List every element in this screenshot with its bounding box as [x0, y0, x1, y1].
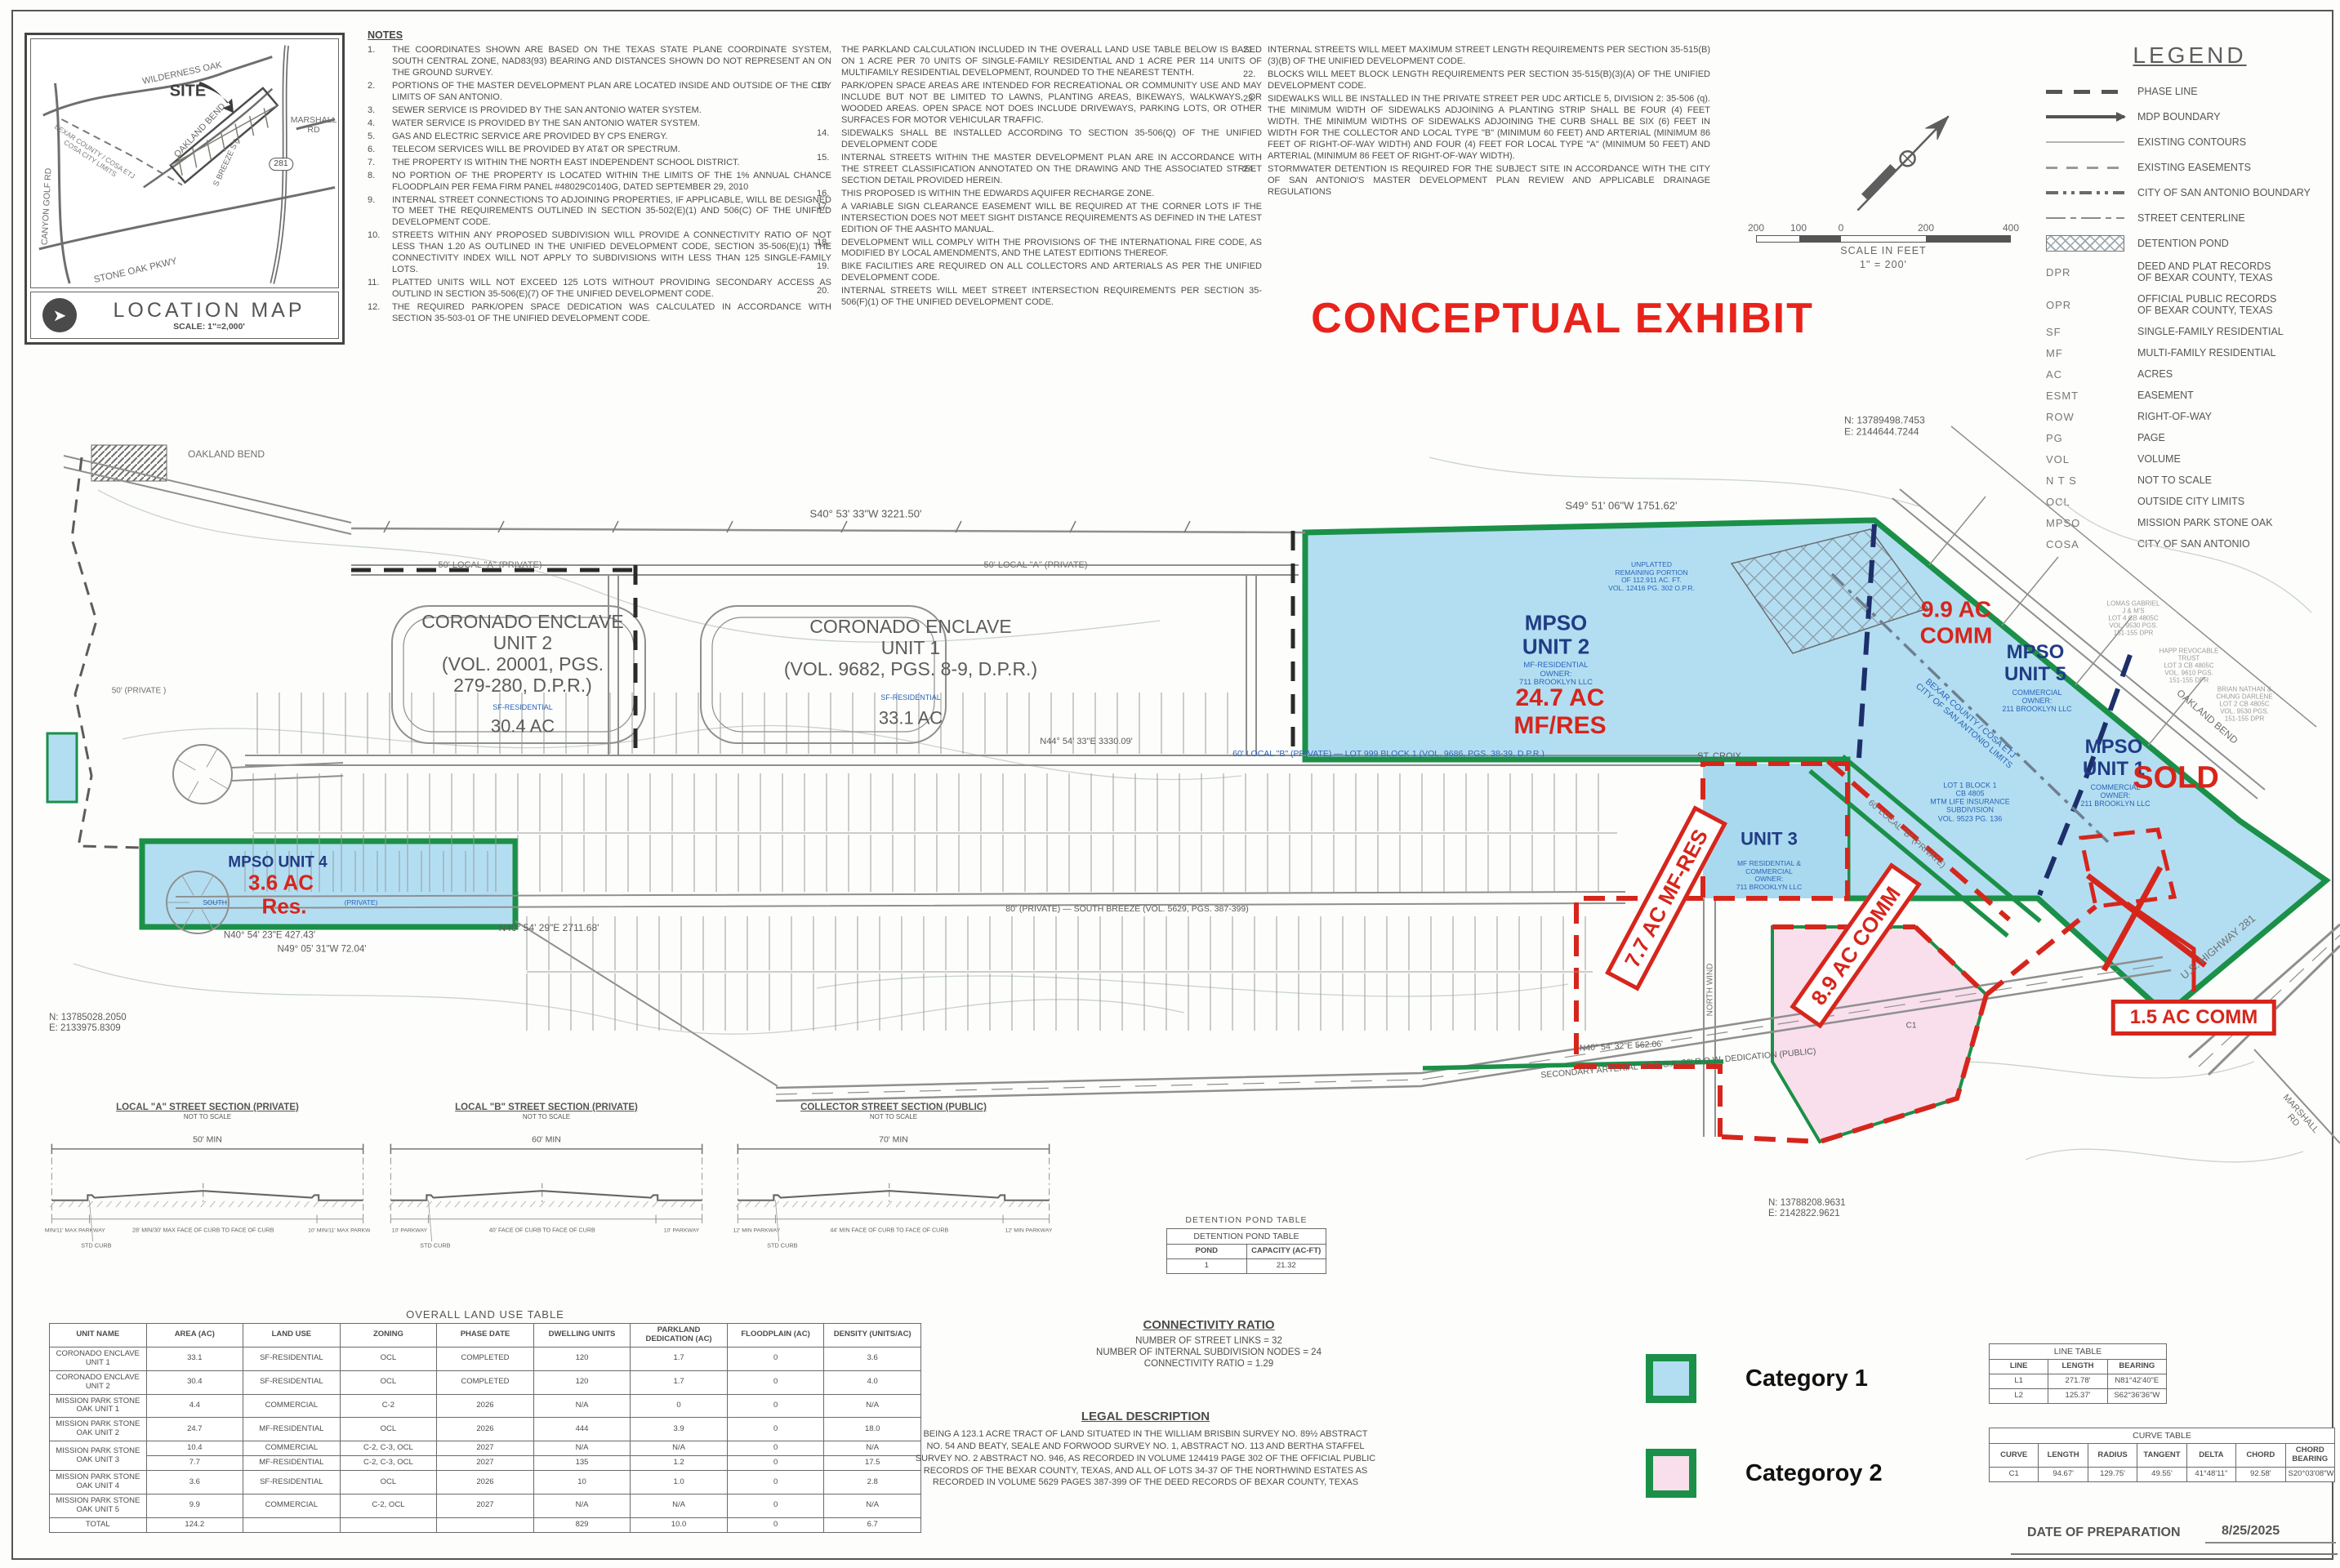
column-header: POND [1167, 1245, 1247, 1259]
table-cell: L1 [1990, 1374, 2048, 1388]
table-cell: SF-RESIDENTIAL [243, 1370, 341, 1394]
table-cell: C-2, C-3, OCL [340, 1456, 437, 1471]
table-cell: 3.9 [631, 1418, 728, 1441]
table-cell: 1 [1167, 1258, 1247, 1273]
note-text: THE REQUIRED PARK/OPEN SPACE DEDICATION … [392, 302, 831, 323]
table-cell: 6.7 [824, 1517, 921, 1532]
north-arrow-icon: ➤ [42, 298, 77, 332]
note-text: THE COORDINATES SHOWN ARE BASED ON THE T… [392, 45, 831, 78]
legal-title: LEGAL DESCRIPTION [915, 1410, 1376, 1423]
abbr-key: OPR [2046, 299, 2124, 311]
abbr-key: DPR [2046, 266, 2124, 278]
svg-text:STD CURB: STD CURB [420, 1241, 451, 1249]
note-text: PLATTED UNITS WILL NOT EXCEED 125 LOTS W… [392, 278, 831, 299]
svg-text:STD CURB: STD CURB [767, 1241, 798, 1249]
table-cell: 7.7 [146, 1456, 243, 1471]
note-item: 1.THE COORDINATES SHOWN ARE BASED ON THE… [368, 45, 831, 79]
table-cell: 1.2 [631, 1456, 728, 1471]
table-cell: 135 [533, 1456, 631, 1471]
notes-column-1: NOTES 1.THE COORDINATES SHOWN ARE BASED … [368, 29, 831, 327]
note-item: 22.BLOCKS WILL MEET BLOCK LENGTH REQUIRE… [1243, 69, 1710, 92]
location-map-labels: WILDERNESS OAKSITEOAKLAND BENDS BREEZE S… [31, 39, 338, 287]
category-legend: Category 1Categoroy 2 [1646, 1354, 1940, 1543]
note-number: 13. [817, 81, 829, 92]
street-section-collector: COLLECTOR STREET SECTION (PUBLIC)NOT TO … [731, 1102, 1056, 1298]
table-cell: 2027 [437, 1494, 534, 1517]
note-item: 9.INTERNAL STREET CONNECTIONS TO ADJOINI… [368, 195, 831, 229]
column-header: CHORD BEARING [2285, 1444, 2334, 1468]
table-cell: 2026 [437, 1394, 534, 1418]
column-header: LENGTH [2039, 1444, 2088, 1468]
location-map: WILDERNESS OAKSITEOAKLAND BENDS BREEZE S… [25, 33, 345, 345]
abbr-key: SF [2046, 326, 2124, 338]
table-cell: 21.32 [1246, 1258, 1326, 1273]
table-cell: MISSION PARK STONE OAK UNIT 1 [50, 1394, 147, 1418]
connectivity-block: CONNECTIVITY RATIO NUMBER OF STREET LINK… [1013, 1318, 1405, 1369]
legend-item-easmt: EXISTING EASEMENTS [2046, 159, 2333, 176]
legend-item-cosa: CITY OF SAN ANTONIO BOUNDARY [2046, 185, 2333, 201]
table-cell [340, 1517, 437, 1532]
table-title: DETENTION POND TABLE [1167, 1229, 1326, 1245]
note-item: 14.SIDEWALKS SHALL BE INSTALLED ACCORDIN… [817, 128, 1262, 151]
date-label: DATE OF PREPARATION [2027, 1526, 2181, 1539]
table-cell: 10 [533, 1471, 631, 1494]
curve-table: CURVE TABLECURVELENGTHRADIUSTANGENTDELTA… [1989, 1428, 2335, 1482]
table-cell: S62°36'36"W [2107, 1388, 2166, 1403]
note-item: 16.THIS PROPOSED IS WITHIN THE EDWARDS A… [817, 189, 1262, 200]
note-text: SIDEWALKS WILL BE INSTALLED IN THE PRIVA… [1268, 94, 1710, 161]
legend-item-center: STREET CENTERLINE [2046, 210, 2333, 226]
scale-tick: 400 [2003, 222, 2019, 234]
category-label: Categoroy 2 [1745, 1460, 1883, 1487]
table-cell: COMMERCIAL [243, 1394, 341, 1418]
table-cell: 0 [727, 1471, 824, 1494]
table-cell: 2027 [437, 1456, 534, 1471]
column-header: LINE [1990, 1360, 2048, 1374]
legal-text: BEING A 123.1 ACRE TRACT OF LAND SITUATE… [915, 1428, 1376, 1489]
notes-column-3: 21.INTERNAL STREETS WILL MEET MAXIMUM ST… [1243, 29, 1710, 200]
table-cell: 120 [533, 1370, 631, 1394]
table-cell: 444 [533, 1418, 631, 1441]
section-title: COLLECTOR STREET SECTION (PUBLIC) [731, 1102, 1056, 1112]
table-cell: 0 [631, 1394, 728, 1418]
legend-item-label: MDP BOUNDARY [2137, 111, 2221, 122]
table-cell: 124.2 [146, 1517, 243, 1532]
legend-item-mdp: MDP BOUNDARY [2046, 109, 2333, 125]
easmt-symbol-icon [2046, 159, 2124, 176]
legend-item-label: EXISTING CONTOURS [2137, 136, 2246, 148]
note-number: 22. [1243, 69, 1255, 81]
road-canyon-golf: CANYON GOLF RD [41, 167, 55, 245]
connectivity-line: CONNECTIVITY RATIO = 1.29 [1013, 1359, 1405, 1369]
street-section-local-b: LOCAL "B" STREET SECTION (PRIVATE)NOT TO… [384, 1102, 709, 1298]
note-item: 21.INTERNAL STREETS WILL MEET MAXIMUM ST… [1243, 45, 1710, 68]
table-cell: 1.7 [631, 1370, 728, 1394]
table-cell: 0 [727, 1441, 824, 1456]
note-number: 20. [817, 286, 829, 297]
table-cell: 2.8 [824, 1471, 921, 1494]
note-text: BIKE FACILITIES ARE REQUIRED ON ALL COLL… [841, 261, 1262, 283]
category-label: Category 1 [1745, 1365, 1868, 1392]
note-item: 20.INTERNAL STREETS WILL MEET STREET INT… [817, 286, 1262, 309]
note-number: 6. [368, 145, 375, 156]
note-number: 14. [817, 128, 829, 140]
note-number: 16. [817, 189, 829, 200]
exhibit-title: CONCEPTUAL EXHIBIT [1311, 294, 1814, 343]
table-cell: 0 [727, 1394, 824, 1418]
table-cell: 120 [533, 1347, 631, 1370]
table-cell: MISSION PARK STONE OAK UNIT 4 [50, 1471, 147, 1494]
note-number: 23. [1243, 94, 1255, 105]
legend-abbr-dpr: DPRDEED AND PLAT RECORDS OF BEXAR COUNTY… [2046, 261, 2333, 284]
scale-tick: 200 [1748, 222, 1764, 234]
section-drawing: 50' MIN10' MIN/11' MAX PARKWAY28' MIN/30… [45, 1120, 370, 1272]
table-cell [437, 1517, 534, 1532]
section-drawing: 70' MIN12' MIN PARKWAY44' MIN FACE OF CU… [731, 1120, 1056, 1272]
table-cell: COMPLETED [437, 1370, 534, 1394]
site-label: SITE [170, 82, 206, 101]
svg-text:28' MIN/30' MAX FACE OF CURB T: 28' MIN/30' MAX FACE OF CURB TO FACE OF … [132, 1227, 274, 1233]
table-cell: OCL [340, 1347, 437, 1370]
note-number: 11. [368, 278, 379, 289]
mdp-symbol-icon [2046, 109, 2124, 125]
column-header: DENSITY (UNITS/AC) [824, 1324, 921, 1347]
note-item: 8.NO PORTION OF THE PROPERTY IS LOCATED … [368, 171, 831, 194]
legend-line-items: PHASE LINEMDP BOUNDARYEXISTING CONTOURSE… [2046, 83, 2333, 252]
note-text: SIDEWALKS SHALL BE INSTALLED ACCORDING T… [841, 128, 1262, 149]
boundary-label: BEXAR COUNTY / COSA ETJ COSA CITY LIMITS [49, 123, 136, 188]
plan-sheet: WILDERNESS OAKSITEOAKLAND BENDS BREEZE S… [0, 0, 2340, 1568]
note-text: BLOCKS WILL MEET BLOCK LENGTH REQUIREMEN… [1268, 69, 1710, 91]
legend-item-label: STREET CENTERLINE [2137, 212, 2245, 224]
connectivity-line: NUMBER OF INTERNAL SUBDIVISION NODES = 2… [1013, 1347, 1405, 1357]
table-cell: CORONADO ENCLAVE UNIT 1 [50, 1347, 147, 1370]
note-item: 12.THE REQUIRED PARK/OPEN SPACE DEDICATI… [368, 302, 831, 325]
svg-text:60' MIN: 60' MIN [532, 1136, 561, 1145]
note-text: THE PARKLAND CALCULATION INCLUDED IN THE… [841, 45, 1262, 78]
street-section-local-a: LOCAL "A" STREET SECTION (PRIVATE)NOT TO… [45, 1102, 370, 1298]
table-cell: C-2 [340, 1394, 437, 1418]
note-text: INTERNAL STREETS WILL MEET MAXIMUM STREE… [1268, 45, 1710, 66]
svg-text:12' MIN PARKWAY: 12' MIN PARKWAY [733, 1227, 781, 1233]
section-title: LOCAL "A" STREET SECTION (PRIVATE) [45, 1102, 370, 1112]
column-header: LENGTH [2048, 1360, 2107, 1374]
note-text: INTERNAL STREETS WILL MEET STREET INTERS… [841, 286, 1262, 307]
detention-table-title: DETENTION POND TABLE [1166, 1215, 1326, 1225]
abbr-label: OFFICIAL PUBLIC RECORDS OF BEXAR COUNTY,… [2137, 293, 2276, 317]
section-nts: NOT TO SCALE [384, 1113, 709, 1120]
scale-bar-label: SCALE IN FEET [1756, 245, 2011, 256]
svg-text:12' MIN PARKWAY: 12' MIN PARKWAY [1005, 1227, 1053, 1233]
table-cell: N/A [631, 1494, 728, 1517]
table-cell: SF-RESIDENTIAL [243, 1471, 341, 1494]
north-arrow-icon [1821, 98, 1985, 229]
note-item: 17.A VARIABLE SIGN CLEARANCE EASEMENT WI… [817, 202, 1262, 236]
table-cell: N81°42'40"E [2107, 1374, 2166, 1388]
table-cell: 0 [727, 1517, 824, 1532]
location-map-canvas: WILDERNESS OAKSITEOAKLAND BENDS BREEZE S… [30, 38, 339, 288]
note-text: DEVELOPMENT WILL COMPLY WITH THE PROVISI… [841, 238, 1262, 259]
scale-tick: 200 [1918, 222, 1934, 234]
note-item: 13.PARK/OPEN SPACE AREAS ARE INTENDED FO… [817, 81, 1262, 127]
note-text: SEWER SERVICE IS PROVIDED BY THE SAN ANT… [392, 105, 702, 115]
table-cell: N/A [533, 1441, 631, 1456]
note-text: WATER SERVICE IS PROVIDED BY THE SAN ANT… [392, 118, 700, 128]
table-cell: 30.4 [146, 1370, 243, 1394]
phase-symbol-icon [2046, 83, 2124, 100]
road-marshall: MARSHALL RD [291, 116, 337, 136]
road-s-breeze: S BREEZE ST [212, 139, 242, 189]
scale-segment [1757, 236, 1799, 242]
table-cell: OCL [340, 1471, 437, 1494]
note-item: 19.BIKE FACILITIES ARE REQUIRED ON ALL C… [817, 261, 1262, 284]
note-text: GAS AND ELECTRIC SERVICE ARE PROVIDED BY… [392, 131, 667, 141]
table-cell: MISSION PARK STONE OAK UNIT 2 [50, 1418, 147, 1441]
connectivity-title: CONNECTIVITY RATIO [1013, 1318, 1405, 1332]
table-title: LINE TABLE [1990, 1344, 2167, 1360]
table-cell: N/A [824, 1441, 921, 1456]
svg-text:10' MIN/11' MAX PARKWAY: 10' MIN/11' MAX PARKWAY [308, 1227, 370, 1233]
table-cell: N/A [533, 1494, 631, 1517]
connectivity-line: NUMBER OF STREET LINKS = 32 [1013, 1336, 1405, 1346]
table-cell: C-2, C-3, OCL [340, 1441, 437, 1456]
table-cell: N/A [824, 1494, 921, 1517]
note-text: STORMWATER DETENTION IS REQUIRED FOR THE… [1268, 164, 1710, 197]
footer-rule [2011, 1553, 2338, 1555]
note-number: 15. [817, 153, 829, 164]
table-cell: COMMERCIAL [243, 1441, 341, 1456]
pond-symbol-icon [2046, 235, 2124, 252]
column-header: RADIUS [2088, 1444, 2137, 1468]
legal-description-block: LEGAL DESCRIPTION BEING A 123.1 ACRE TRA… [915, 1410, 1376, 1489]
category-item: Categoroy 2 [1646, 1449, 1940, 1498]
notes-heading: NOTES [368, 29, 831, 42]
scale-bar-bar [1756, 235, 2011, 243]
west-boundary [72, 457, 142, 848]
legend-title: LEGEND [2046, 42, 2333, 69]
scale-bar: 2001000200400 SCALE IN FEET 1" = 200' [1756, 222, 2011, 270]
column-header: PARKLAND DEDICATION (AC) [631, 1324, 728, 1347]
table-cell: 41°48'11" [2186, 1467, 2235, 1481]
table-cell: 0 [727, 1456, 824, 1471]
scale-segment [1926, 236, 2010, 242]
note-number: 5. [368, 131, 375, 143]
note-text: TELECOM SERVICES WILL BE PROVIDED BY AT&… [392, 145, 680, 154]
location-map-scale: SCALE: 1"=2,000' [88, 322, 330, 332]
road-stone-oak: STONE OAK PKWY [93, 256, 178, 286]
legend-item-label: CITY OF SAN ANTONIO BOUNDARY [2137, 187, 2311, 198]
table-title: CURVE TABLE [1990, 1428, 2335, 1444]
table-cell: 17.5 [824, 1456, 921, 1471]
table-cell: C1 [1990, 1467, 2039, 1481]
note-number: 2. [368, 81, 375, 92]
scale-tick: 0 [1839, 222, 1844, 234]
column-header: AREA (AC) [146, 1324, 243, 1347]
note-number: 19. [817, 261, 829, 273]
table-cell: N/A [824, 1394, 921, 1418]
column-header: BEARING [2107, 1360, 2166, 1374]
scale-bar-ratio: 1" = 200' [1756, 259, 2011, 270]
table-cell: 129.75' [2088, 1467, 2137, 1481]
table-cell: 0 [727, 1494, 824, 1517]
table-cell: 4.0 [824, 1370, 921, 1394]
column-header: CURVE [1990, 1444, 2039, 1468]
table-cell [243, 1517, 341, 1532]
parcel-edge-fill [47, 733, 77, 802]
abbr-label: DEED AND PLAT RECORDS OF BEXAR COUNTY, T… [2137, 261, 2273, 284]
note-item: 5.GAS AND ELECTRIC SERVICE ARE PROVIDED … [368, 131, 831, 143]
column-header: CHORD [2236, 1444, 2285, 1468]
table-cell: 829 [533, 1517, 631, 1532]
table-cell: 94.67' [2039, 1467, 2088, 1481]
cosa-symbol-icon [2046, 185, 2124, 201]
section-nts: NOT TO SCALE [45, 1113, 370, 1120]
note-number: 17. [817, 202, 829, 213]
line-table: LINE TABLELINELENGTHBEARINGL1271.78'N81°… [1989, 1343, 2167, 1404]
legend-abbr-sf: SFSINGLE-FAMILY RESIDENTIAL [2046, 326, 2333, 338]
svg-text:10' PARKWAY: 10' PARKWAY [392, 1227, 428, 1233]
note-number: 9. [368, 195, 375, 207]
table-cell: COMMERCIAL [243, 1494, 341, 1517]
legend-item-pond: DETENTION POND [2046, 235, 2333, 252]
category-item: Category 1 [1646, 1354, 1940, 1403]
section-nts: NOT TO SCALE [731, 1113, 1056, 1120]
note-number: 18. [817, 238, 829, 249]
location-map-titleband: ➤ LOCATION MAP SCALE: 1"=2,000' [30, 292, 339, 339]
date-of-preparation: DATE OF PREPARATION 8/25/2025 [2027, 1526, 2336, 1540]
table-cell: 24.7 [146, 1418, 243, 1441]
table-cell: N/A [631, 1441, 728, 1456]
scale-bar-ticks: 2001000200400 [1756, 222, 2011, 234]
table-cell: 2026 [437, 1471, 534, 1494]
note-item: 4.WATER SERVICE IS PROVIDED BY THE SAN A… [368, 118, 831, 130]
table-cell: 0 [727, 1418, 824, 1441]
legend-abbr-opr: OPROFFICIAL PUBLIC RECORDS OF BEXAR COUN… [2046, 293, 2333, 317]
scale-segment [1841, 236, 1925, 242]
note-item: 23.SIDEWALKS WILL BE INSTALLED IN THE PR… [1243, 94, 1710, 163]
land-use-table: UNIT NAMEAREA (AC)LAND USEZONINGPHASE DA… [49, 1323, 921, 1533]
column-header: LAND USE [243, 1324, 341, 1347]
note-item: 15.INTERNAL STREETS WITHIN THE MASTER DE… [817, 153, 1262, 187]
note-item: 7.THE PROPERTY IS WITHIN THE NORTH EAST … [368, 158, 831, 169]
note-text: INTERNAL STREETS WITHIN THE MASTER DEVEL… [841, 153, 1262, 185]
note-text: A VARIABLE SIGN CLEARANCE EASEMENT WILL … [841, 202, 1262, 234]
note-text: THIS PROPOSED IS WITHIN THE EDWARDS AQUI… [841, 189, 1154, 198]
note-item: 18.DEVELOPMENT WILL COMPLY WITH THE PROV… [817, 238, 1262, 261]
notes-column-2: THE PARKLAND CALCULATION INCLUDED IN THE… [817, 29, 1262, 310]
table-cell: 1.0 [631, 1471, 728, 1494]
table-cell: 0 [727, 1347, 824, 1370]
table-cell: 0 [727, 1370, 824, 1394]
svg-text:10' MIN/11' MAX PARKWAY: 10' MIN/11' MAX PARKWAY [45, 1227, 105, 1233]
legend-item-label: EXISTING EASEMENTS [2137, 162, 2251, 173]
note-text: THE PROPERTY IS WITHIN THE NORTH EAST IN… [392, 158, 740, 167]
note-item: 11.PLATTED UNITS WILL NOT EXCEED 125 LOT… [368, 278, 831, 301]
note-text: INTERNAL STREET CONNECTIONS TO ADJOINING… [392, 195, 831, 228]
column-header: CAPACITY (AC-FT) [1246, 1245, 1326, 1259]
note-text: PARK/OPEN SPACE AREAS ARE INTENDED FOR R… [841, 81, 1262, 125]
note-number: 1. [368, 45, 375, 56]
column-header: DELTA [2186, 1444, 2235, 1468]
table-cell: N/A [533, 1394, 631, 1418]
svg-text:44' MIN FACE OF CURB TO FACE O: 44' MIN FACE OF CURB TO FACE OF CURB [830, 1227, 948, 1233]
abbr-label: SINGLE-FAMILY RESIDENTIAL [2137, 326, 2284, 337]
table-cell: OCL [340, 1370, 437, 1394]
column-header: ZONING [340, 1324, 437, 1347]
table-cell: 125.37' [2048, 1388, 2107, 1403]
table-cell: 2027 [437, 1441, 534, 1456]
note-number: 12. [368, 302, 380, 314]
table-cell: 3.6 [146, 1471, 243, 1494]
svg-text:70' MIN: 70' MIN [879, 1136, 908, 1145]
table-cell: MF-RESIDENTIAL [243, 1456, 341, 1471]
table-cell: MF-RESIDENTIAL [243, 1418, 341, 1441]
table-cell: 4.4 [146, 1394, 243, 1418]
note-number: 21. [1243, 45, 1255, 56]
highway-281-shield: 281 [269, 158, 293, 171]
section-title: LOCAL "B" STREET SECTION (PRIVATE) [384, 1102, 709, 1112]
table-cell: 2026 [437, 1418, 534, 1441]
note-number: 24. [1243, 164, 1255, 176]
note-number: 10. [368, 230, 380, 242]
note-text: NO PORTION OF THE PROPERTY IS LOCATED WI… [392, 171, 831, 192]
table-cell: 10.0 [631, 1517, 728, 1532]
note-number: 4. [368, 118, 375, 130]
contours-symbol-icon [2046, 134, 2124, 150]
table-cell: OCL [340, 1418, 437, 1441]
scale-segment [1799, 236, 1842, 242]
table-cell: TOTAL [50, 1517, 147, 1532]
table-cell: 18.0 [824, 1418, 921, 1441]
column-header: FLOODPLAIN (AC) [727, 1324, 824, 1347]
category-swatch [1646, 1449, 1696, 1498]
table-cell: CORONADO ENCLAVE UNIT 2 [50, 1370, 147, 1394]
table-cell: 49.55' [2137, 1467, 2186, 1481]
table-cell: C-2, OCL [340, 1494, 437, 1517]
section-drawing: 60' MIN10' PARKWAY40' FACE OF CURB TO FA… [384, 1120, 709, 1272]
column-header: UNIT NAME [50, 1324, 147, 1347]
svg-text:40' FACE OF CURB TO FACE OF CU: 40' FACE OF CURB TO FACE OF CURB [489, 1227, 595, 1233]
table-cell: 9.9 [146, 1494, 243, 1517]
legend-item-phase: PHASE LINE [2046, 83, 2333, 100]
table-cell: 1.7 [631, 1347, 728, 1370]
svg-text:10' PARKWAY: 10' PARKWAY [664, 1227, 700, 1233]
date-underline [2205, 1542, 2336, 1543]
parcel-category2-fill [1772, 927, 1986, 1142]
column-header: PHASE DATE [437, 1324, 534, 1347]
note-text: PORTIONS OF THE MASTER DEVELOPMENT PLAN … [392, 81, 831, 102]
svg-text:STD CURB: STD CURB [81, 1241, 112, 1249]
table-cell: SF-RESIDENTIAL [243, 1347, 341, 1370]
note-item: 6.TELECOM SERVICES WILL BE PROVIDED BY A… [368, 145, 831, 156]
svg-text:50' MIN: 50' MIN [193, 1136, 222, 1145]
table-cell: MISSION PARK STONE OAK UNIT 5 [50, 1494, 147, 1517]
detention-table: DETENTION POND TABLEPONDCAPACITY (AC-FT)… [1166, 1228, 1326, 1274]
scale-tick: 100 [1790, 222, 1807, 234]
note-item: 3.SEWER SERVICE IS PROVIDED BY THE SAN A… [368, 105, 831, 117]
table-cell: 33.1 [146, 1347, 243, 1370]
legend-item-contours: EXISTING CONTOURS [2046, 134, 2333, 150]
land-use-table-title: OVERALL LAND USE TABLE [49, 1308, 921, 1321]
note-item: THE PARKLAND CALCULATION INCLUDED IN THE… [817, 45, 1262, 79]
table-cell: 92.58' [2236, 1467, 2285, 1481]
note-number: 7. [368, 158, 375, 169]
table-cell: COMPLETED [437, 1347, 534, 1370]
category-swatch [1646, 1354, 1696, 1403]
column-header: TANGENT [2137, 1444, 2186, 1468]
date-value: 8/25/2025 [2222, 1524, 2280, 1539]
legend-item-label: PHASE LINE [2137, 86, 2198, 97]
